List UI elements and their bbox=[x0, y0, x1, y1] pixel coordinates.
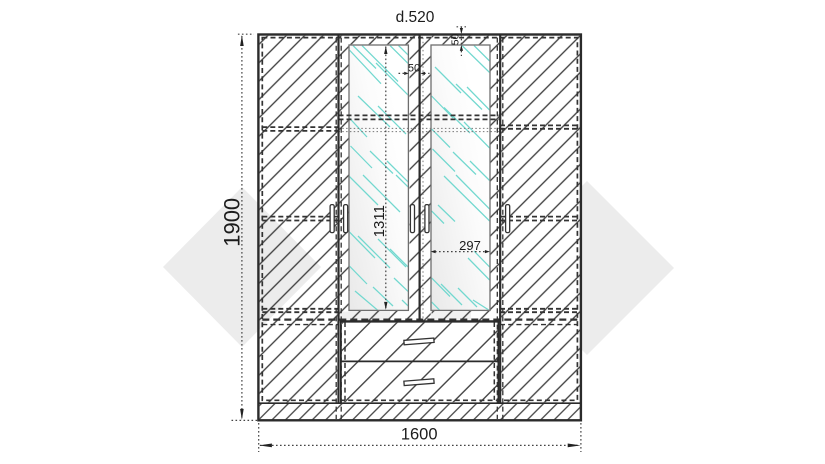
svg-text:d.520: d.520 bbox=[396, 9, 435, 26]
svg-text:1600: 1600 bbox=[401, 426, 438, 444]
svg-text:297: 297 bbox=[459, 238, 481, 253]
svg-text:50: 50 bbox=[408, 63, 420, 75]
svg-text:1900: 1900 bbox=[219, 198, 244, 247]
svg-text:1311: 1311 bbox=[371, 205, 388, 237]
svg-text:50: 50 bbox=[449, 33, 461, 45]
